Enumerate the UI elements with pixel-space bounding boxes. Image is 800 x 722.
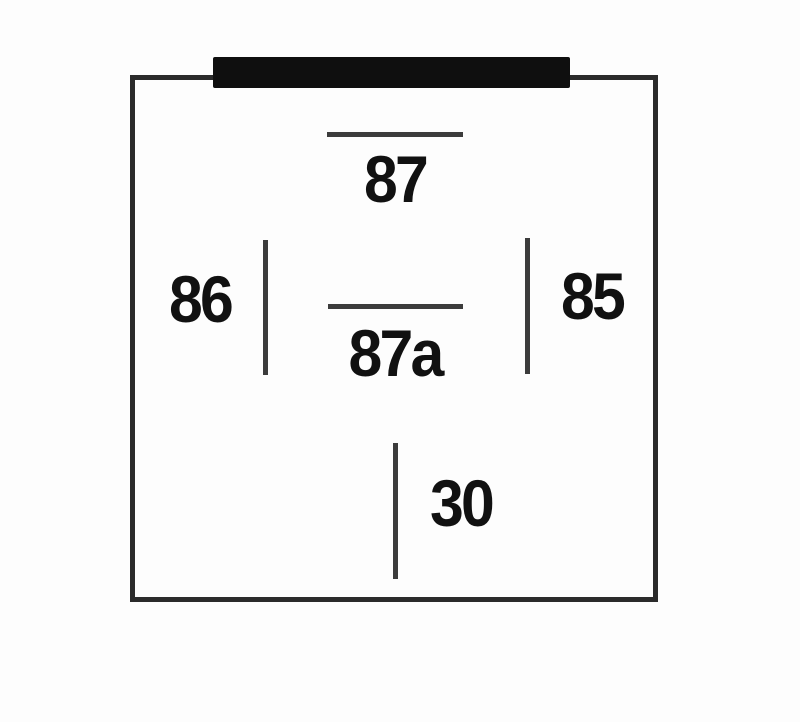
pin-86-label: 86 bbox=[156, 266, 244, 332]
pin-87a-line bbox=[328, 304, 463, 309]
pin-30-line bbox=[393, 443, 398, 579]
pin-85-label: 85 bbox=[548, 263, 636, 329]
pin-87-line bbox=[327, 132, 463, 137]
relay-pinout-diagram: 87 86 85 87a 30 bbox=[0, 0, 800, 722]
pin-86-line bbox=[263, 240, 268, 375]
pin-30-label: 30 bbox=[417, 470, 505, 536]
pin-87a-label: 87a bbox=[326, 320, 464, 386]
pin-87-label: 87 bbox=[334, 146, 455, 212]
relay-connector-bar bbox=[213, 57, 570, 88]
pin-85-line bbox=[525, 238, 530, 374]
